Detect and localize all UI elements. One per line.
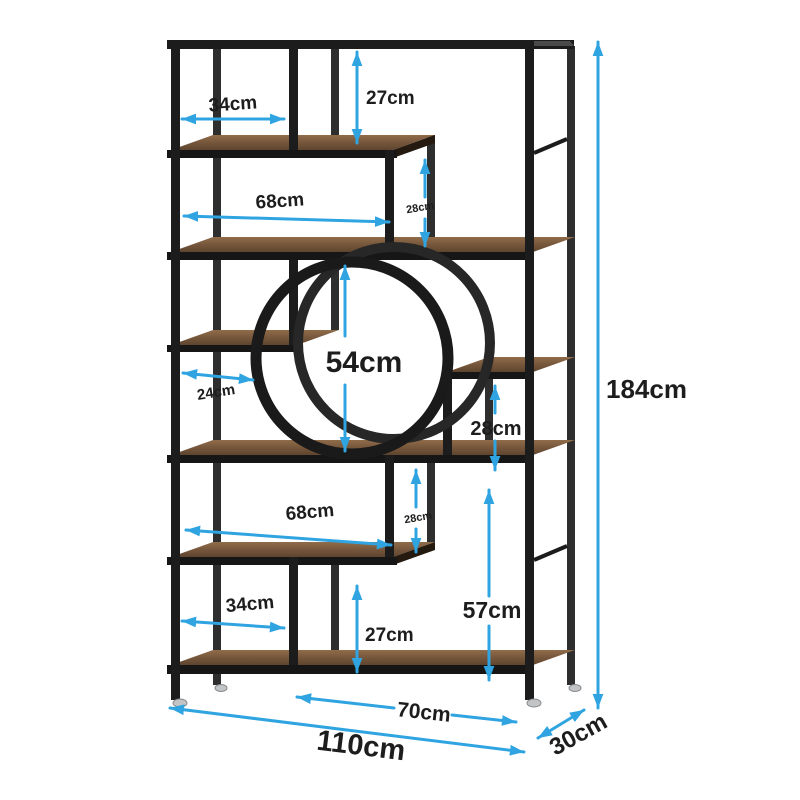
dim-label-30cm: 30cm [545, 708, 612, 761]
back-right-post [567, 46, 575, 685]
dim-label-184cm: 184cm [606, 374, 687, 404]
dim-label-28cm-right: 28cm [470, 418, 521, 440]
dim-label-68cm-lower: 68cm [285, 500, 335, 525]
dim-arrow-70cm-b [452, 715, 516, 722]
dim-label-24cm: 24cm [196, 381, 237, 404]
dim-label-57cm: 57cm [463, 597, 522, 623]
shelf-bottom [167, 650, 575, 674]
back-divider-top [331, 49, 339, 135]
dim-label-27cm-top: 27cm [366, 88, 415, 109]
dim-bottom-left-opening-width: 34cm [182, 592, 284, 628]
top-rail [167, 40, 574, 49]
front-left-post [171, 40, 180, 700]
shelf-small-right [443, 357, 575, 379]
front-right-post [525, 40, 534, 700]
foot-back-left [215, 685, 227, 692]
dim-overall-height: 184cm [598, 42, 687, 708]
dim-arrow-70cm-a [297, 697, 394, 708]
top-corner-depth [529, 41, 574, 46]
divider-top [289, 49, 298, 150]
divider-upper [385, 150, 394, 252]
dim-label-70cm: 70cm [396, 698, 452, 726]
side-rail-lower [534, 546, 567, 560]
foot-front-left [173, 699, 187, 707]
side-rail-upper [534, 139, 567, 153]
feet [173, 685, 581, 708]
bookshelf-illustration: 34cm 27cm 68cm 28cm 54cm 24cm 28cm [0, 0, 800, 800]
dim-label-54cm: 54cm [326, 346, 403, 379]
divider-lower [385, 455, 394, 557]
dim-arrow-34cm-bottom [182, 621, 284, 628]
dim-label-110cm: 110cm [315, 725, 407, 768]
foot-back-right [569, 685, 581, 692]
dim-top-left-opening-width: 34cm [182, 92, 284, 119]
shelf-step-lower [167, 542, 435, 565]
shelf-step-upper [167, 135, 435, 158]
dim-overall-depth: 30cm [538, 708, 612, 761]
dim-bottom-shelf-width: 70cm [297, 697, 516, 727]
dim-label-27cm-bottom: 27cm [365, 625, 414, 646]
dim-top-opening-height: 27cm [357, 52, 415, 143]
dim-label-34cm-bottom: 34cm [225, 592, 275, 617]
dim-label-34cm-top: 34cm [208, 92, 258, 116]
dim-label-68cm-upper: 68cm [255, 189, 305, 213]
product-dimension-diagram: 34cm 27cm 68cm 28cm 54cm 24cm 28cm [0, 0, 800, 800]
foot-front-right [527, 699, 541, 707]
back-divider-upper [427, 135, 435, 237]
divider-bottom [289, 557, 298, 665]
dim-middle-left-opening-width: 24cm [183, 373, 253, 404]
